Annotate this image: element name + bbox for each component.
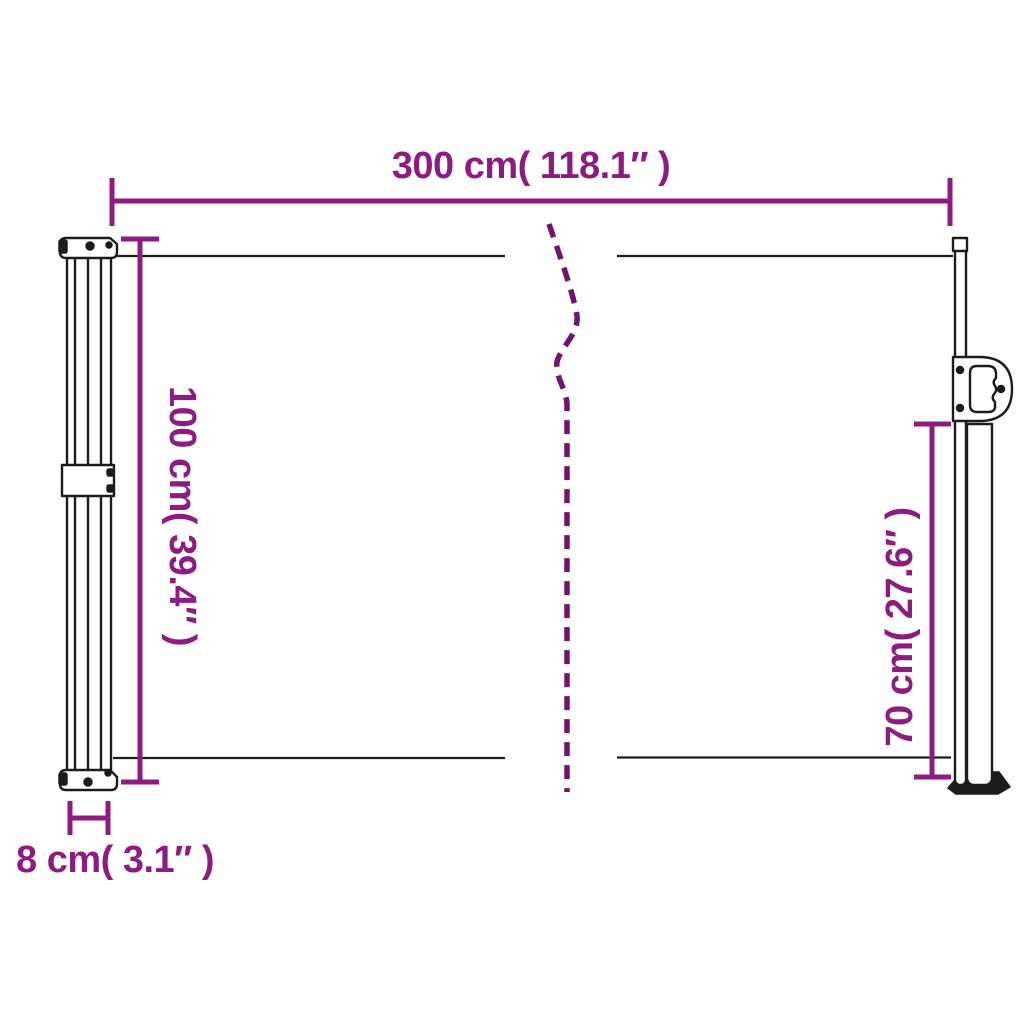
pole-height-label: 70 cm( 27.6″ ) xyxy=(879,507,921,746)
depth-label: 8 cm( 3.1″ ) xyxy=(16,839,214,881)
handle xyxy=(953,357,1012,421)
width-label: 300 cm( 118.1″ ) xyxy=(392,145,671,187)
pole-top-cap xyxy=(953,238,967,251)
product-dimension-diagram: 300 cm( 118.1″ ) 100 cm( 39.4″ ) 70 cm( … xyxy=(0,0,1024,1024)
pole-wide-tube xyxy=(967,424,992,785)
dimension-depth xyxy=(70,801,108,835)
cassette-bottom-cap xyxy=(59,770,117,790)
break-line xyxy=(549,224,577,792)
support-pole xyxy=(948,238,1012,794)
cassette xyxy=(59,238,117,790)
height-label: 100 cm( 39.4″ ) xyxy=(161,386,203,646)
cassette-top-cap xyxy=(59,238,117,258)
pole-thin-tube xyxy=(955,250,966,785)
awning-dimension-drawing: 300 cm( 118.1″ ) 100 cm( 39.4″ ) 70 cm( … xyxy=(0,0,1024,1024)
dimension-height xyxy=(121,239,159,782)
cassette-middle-band xyxy=(62,465,114,496)
fabric-bottom-edge xyxy=(113,758,951,759)
